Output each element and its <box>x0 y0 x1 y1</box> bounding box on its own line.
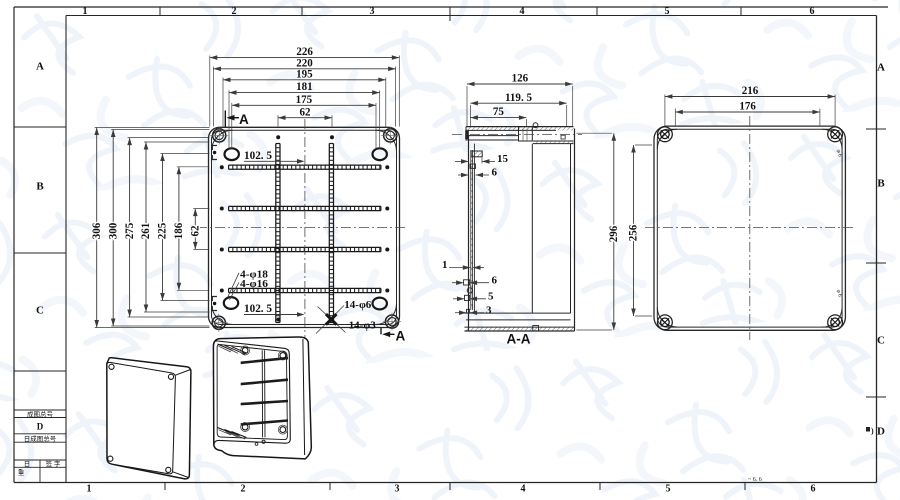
svg-text:5: 5 <box>665 6 670 17</box>
svg-text:4: 4 <box>521 484 526 495</box>
svg-text:2: 2 <box>232 6 237 17</box>
svg-text:成图总号: 成图总号 <box>27 409 54 418</box>
svg-text:102. 5: 102. 5 <box>244 150 272 162</box>
svg-text:B: B <box>877 178 885 190</box>
svg-text:6: 6 <box>492 167 498 179</box>
svg-text:15: 15 <box>497 153 509 165</box>
svg-text:62: 62 <box>300 106 311 118</box>
svg-text:119. 5: 119. 5 <box>505 92 532 104</box>
svg-text:4: 4 <box>520 6 525 17</box>
svg-text:4-φ16: 4-φ16 <box>240 278 269 290</box>
svg-text:261: 261 <box>140 223 152 240</box>
svg-text:C: C <box>36 305 44 317</box>
svg-text:195: 195 <box>296 68 313 80</box>
svg-text:A: A <box>239 112 249 127</box>
svg-text:A-A: A-A <box>507 332 531 347</box>
svg-text:B: B <box>36 181 44 193</box>
svg-text:3: 3 <box>486 304 492 316</box>
svg-text:D: D <box>877 426 885 438</box>
svg-text:181: 181 <box>296 81 313 93</box>
svg-text:1: 1 <box>87 484 92 495</box>
svg-text:102. 5: 102. 5 <box>244 303 272 315</box>
svg-text:3: 3 <box>370 6 375 17</box>
svg-text:216: 216 <box>742 85 759 97</box>
svg-text:C: C <box>877 335 885 347</box>
svg-text:176: 176 <box>739 101 756 113</box>
svg-text:62: 62 <box>190 225 202 236</box>
svg-text:186: 186 <box>173 223 185 240</box>
svg-text:14-φ6: 14-φ6 <box>344 299 371 311</box>
svg-text:日: 日 <box>24 460 31 468</box>
svg-text:1: 1 <box>83 6 88 17</box>
svg-text:2: 2 <box>241 484 246 495</box>
svg-text:A: A <box>877 62 885 74</box>
svg-text:6: 6 <box>492 274 498 286</box>
svg-text:3: 3 <box>395 484 400 495</box>
svg-text:175: 175 <box>296 94 313 106</box>
svg-text:225: 225 <box>157 223 169 240</box>
svg-text:306: 306 <box>91 223 103 240</box>
svg-text:14-φ3: 14-φ3 <box>349 319 376 331</box>
svg-text:300: 300 <box>107 223 119 240</box>
svg-text:226: 226 <box>296 46 313 58</box>
svg-text:A: A <box>396 329 406 344</box>
svg-text:~ 6. 6: ~ 6. 6 <box>748 477 762 483</box>
svg-text:D: D <box>37 422 44 432</box>
svg-text:6: 6 <box>810 6 815 17</box>
svg-text:6: 6 <box>811 484 816 495</box>
svg-text:重: 重 <box>18 469 25 477</box>
svg-text:日成图总号: 日成图总号 <box>24 434 57 443</box>
svg-text:5: 5 <box>666 484 671 495</box>
svg-text:): ) <box>871 427 874 436</box>
svg-text:296: 296 <box>608 226 620 243</box>
svg-text:275: 275 <box>124 223 136 240</box>
svg-text:5: 5 <box>488 290 494 302</box>
svg-text:A: A <box>36 61 44 73</box>
svg-text:256: 256 <box>628 225 640 242</box>
svg-text:126: 126 <box>512 73 529 85</box>
svg-text:签 字: 签 字 <box>46 459 61 468</box>
svg-text:1: 1 <box>442 259 448 271</box>
svg-text:75: 75 <box>493 106 504 118</box>
